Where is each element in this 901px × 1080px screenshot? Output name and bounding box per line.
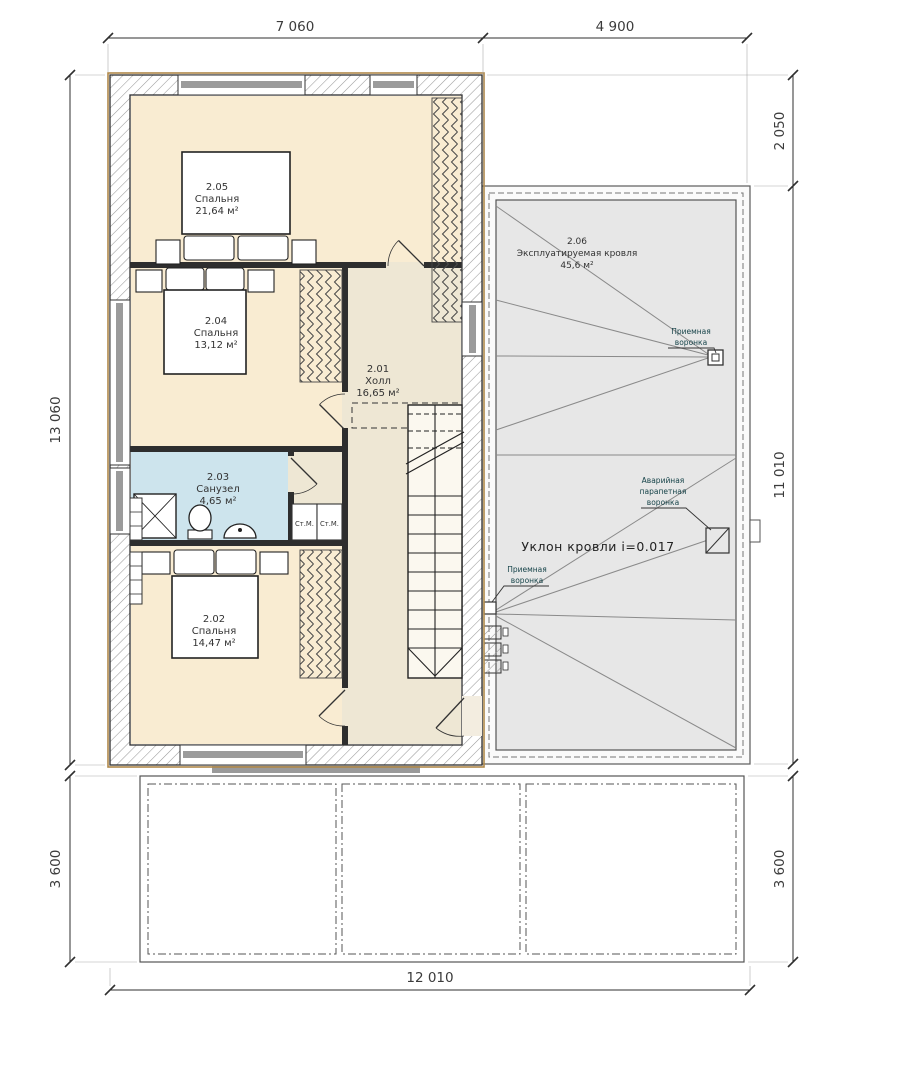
- nightstand: [136, 270, 162, 292]
- bedroom-2-05-floor: [131, 96, 461, 262]
- radiator-icon: [130, 552, 142, 604]
- dim-label-bottom: 12 010: [406, 970, 453, 986]
- drain1-label-line2: воронка: [675, 338, 707, 347]
- window: [370, 75, 417, 95]
- floor-plan-page: 2.06 Эксплуатируемая кровля 45,6 м² Прие…: [0, 0, 901, 1080]
- toilet-icon: [188, 505, 212, 539]
- room-name: Холл: [365, 376, 391, 387]
- wardrobe-icon: [300, 270, 342, 382]
- pillow: [238, 236, 288, 260]
- drain2-label-line1: Приемная: [507, 565, 547, 574]
- dim-label-left-lower: 3 600: [48, 850, 64, 889]
- pillow: [166, 268, 204, 290]
- wardrobe-icon: [432, 98, 462, 322]
- room-area: 16,65 м²: [356, 388, 399, 399]
- room-area: 45,6 м²: [560, 261, 594, 271]
- window: [110, 468, 130, 534]
- radiator-icon: [130, 498, 142, 540]
- pillow: [206, 268, 244, 290]
- nightstand: [248, 270, 274, 292]
- building: Ст.М. Ст.М.: [108, 73, 484, 767]
- pillow: [216, 550, 256, 574]
- emergency-label-line2: парапетная: [640, 487, 687, 496]
- room-name: Санузел: [196, 484, 239, 495]
- bed: [182, 152, 290, 234]
- washer-label: Ст.М.: [295, 520, 314, 528]
- floor-plan-drawing: 2.06 Эксплуатируемая кровля 45,6 м² Прие…: [0, 0, 901, 1080]
- room-name: Спальня: [195, 194, 240, 205]
- nightstand: [260, 552, 288, 574]
- dimension-right: [788, 70, 798, 967]
- window: [178, 75, 305, 95]
- roof-terrace: 2.06 Эксплуатируемая кровля 45,6 м² Прие…: [482, 186, 760, 764]
- roof-drain-2-icon: [484, 602, 496, 614]
- room-area: 13,12 м²: [194, 340, 237, 351]
- washer-label: Ст.М.: [320, 520, 339, 528]
- pillow: [174, 550, 214, 574]
- room-name: Эксплуатируемая кровля: [517, 249, 638, 259]
- nightstand: [292, 240, 316, 264]
- dimension-bottom: [105, 985, 755, 995]
- emergency-label-line3: воронка: [647, 498, 679, 507]
- window: [110, 300, 130, 465]
- room-area: 14,47 м²: [192, 638, 235, 649]
- room-area: 21,64 м²: [195, 206, 238, 217]
- drain1-label-line1: Приемная: [671, 327, 711, 336]
- window: [180, 745, 306, 765]
- roof-slope-note: Уклон кровли i=0.017: [521, 539, 674, 554]
- emergency-label-line1: Аварийная: [642, 476, 685, 485]
- parapet-tab: [750, 520, 760, 542]
- room-number: 2.06: [567, 237, 587, 247]
- dimension-left: [65, 70, 75, 967]
- emergency-drain-icon: [706, 528, 729, 553]
- room-number: 2.04: [205, 316, 227, 327]
- dim-label-right-lower: 3 600: [772, 850, 788, 889]
- room-name: Спальня: [192, 626, 237, 637]
- dim-label-right-top: 2 050: [772, 112, 788, 151]
- room-area: 4,65 м²: [200, 496, 237, 507]
- dimension-top: [103, 33, 752, 43]
- room-number: 2.01: [367, 364, 389, 375]
- room-name: Спальня: [194, 328, 239, 339]
- wardrobe-icon: [300, 550, 342, 678]
- roof-equipment-icon: [484, 626, 508, 673]
- pillow: [184, 236, 234, 260]
- roof-surface: [496, 200, 736, 750]
- terrace-outline: [140, 776, 744, 962]
- washing-machine-closet: Ст.М. Ст.М.: [292, 504, 342, 540]
- room-number: 2.02: [203, 614, 225, 625]
- drain2-label-line2: воронка: [511, 576, 543, 585]
- room-number: 2.05: [206, 182, 228, 193]
- dim-label-right-main: 11 010: [772, 451, 788, 498]
- nightstand: [142, 552, 170, 574]
- dim-label-left-main: 13 060: [48, 396, 64, 443]
- dim-label-top-left: 7 060: [276, 19, 315, 35]
- nightstand: [156, 240, 180, 264]
- dim-label-top-right: 4 900: [596, 19, 635, 35]
- lower-terrace: [140, 766, 744, 962]
- window: [462, 302, 482, 356]
- room-number: 2.03: [207, 472, 229, 483]
